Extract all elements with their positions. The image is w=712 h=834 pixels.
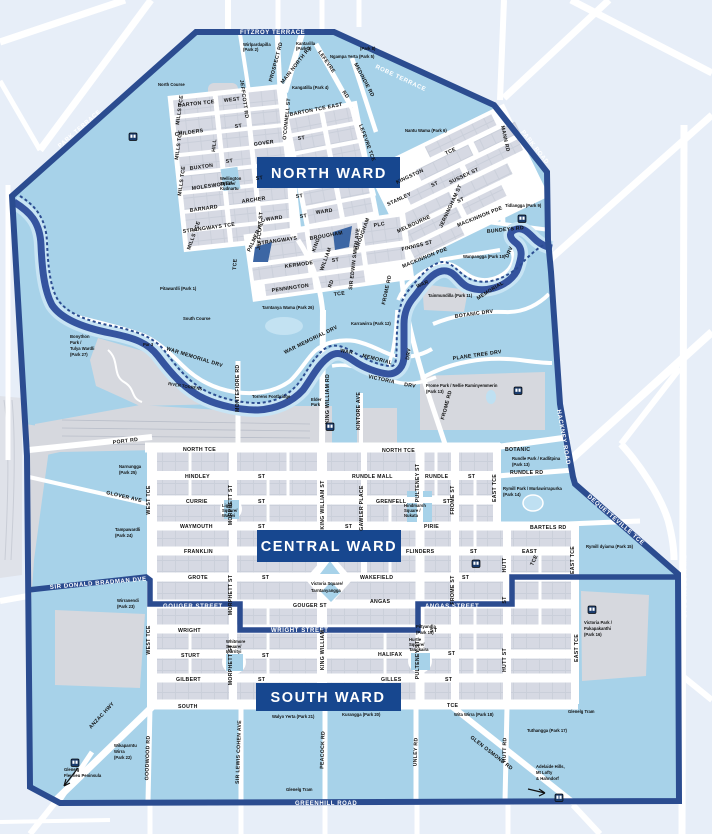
svg-text:Bonython: Bonython xyxy=(70,334,90,339)
svg-text:(Park 2): (Park 2) xyxy=(243,47,259,52)
svg-text:ST: ST xyxy=(258,677,266,683)
svg-text:GILLES: GILLES xyxy=(381,677,402,683)
svg-text:Pitawardli (Park 1): Pitawardli (Park 1) xyxy=(160,286,197,291)
svg-text:(Park 27): (Park 27) xyxy=(70,352,88,357)
svg-text:TCE: TCE xyxy=(232,258,239,270)
svg-text:Ngampa Yerta (Park 5): Ngampa Yerta (Park 5) xyxy=(330,54,375,59)
svg-text:(Park 22): (Park 22) xyxy=(114,755,132,760)
svg-text:Tarntanyangga: Tarntanyangga xyxy=(311,588,341,593)
svg-text:GROTE: GROTE xyxy=(188,575,208,581)
svg-text:Rymill dyiama (Park 15): Rymill dyiama (Park 15) xyxy=(586,544,634,549)
svg-text:ST: ST xyxy=(258,499,266,505)
svg-text:HINDLEY: HINDLEY xyxy=(185,474,210,480)
svg-text:Pakapakanthi: Pakapakanthi xyxy=(584,626,611,631)
svg-text:EAST: EAST xyxy=(522,549,538,555)
svg-text:TCE: TCE xyxy=(447,703,459,709)
svg-text:Tidlangga (Park 9): Tidlangga (Park 9) xyxy=(505,203,542,208)
svg-text:Narnungga: Narnungga xyxy=(119,464,142,469)
svg-text:Park: Park xyxy=(311,402,321,407)
svg-text:Tulya Wardli: Tulya Wardli xyxy=(70,346,94,351)
svg-text:Karrawirra (Park 12): Karrawirra (Park 12) xyxy=(351,321,391,326)
svg-text:Glenelg Tram: Glenelg Tram xyxy=(286,787,313,792)
svg-text:MORPHETT ST: MORPHETT ST xyxy=(228,574,234,615)
svg-text:ST: ST xyxy=(502,596,508,604)
svg-text:ST: ST xyxy=(262,575,270,581)
svg-text:(Park 24): (Park 24) xyxy=(115,533,133,538)
svg-text:Par 3: Par 3 xyxy=(143,342,154,347)
svg-text:SOUTH WARD: SOUTH WARD xyxy=(270,690,385,706)
svg-text:Kurangga (Park 20): Kurangga (Park 20) xyxy=(342,712,381,717)
svg-text:Wirra: Wirra xyxy=(114,749,125,754)
svg-text:ST: ST xyxy=(295,193,304,200)
svg-text:Tuthangga (Park 17): Tuthangga (Park 17) xyxy=(527,728,568,733)
svg-text:ST: ST xyxy=(299,213,308,220)
svg-text:Wauwi: Wauwi xyxy=(222,513,235,518)
svg-text:Nukata: Nukata xyxy=(404,513,419,518)
svg-text:(Park 16): (Park 16) xyxy=(584,632,602,637)
svg-text:ST: ST xyxy=(345,524,353,530)
svg-text:South Course: South Course xyxy=(183,316,211,321)
svg-text:BARTELS RD: BARTELS RD xyxy=(530,525,566,531)
svg-text:WAYMOUTH: WAYMOUTH xyxy=(180,524,213,530)
svg-text:Wanpangga (Park 10): Wanpangga (Park 10) xyxy=(463,254,506,259)
svg-text:ST: ST xyxy=(468,474,476,480)
svg-text:FLINDERS: FLINDERS xyxy=(406,549,435,555)
svg-text:NORTH WARD: NORTH WARD xyxy=(271,166,387,182)
svg-text:GRENFELL: GRENFELL xyxy=(376,499,407,505)
svg-text:ST: ST xyxy=(234,123,243,130)
svg-text:(Park 25): (Park 25) xyxy=(119,470,137,475)
svg-text:Kangatilla (Park 4): Kangatilla (Park 4) xyxy=(292,85,329,90)
svg-text:(Park 13): (Park 13) xyxy=(426,389,444,394)
svg-text:PIRIE: PIRIE xyxy=(424,524,439,530)
svg-text:(Park 8): (Park 8) xyxy=(360,46,376,51)
svg-text:KINTORE AVE: KINTORE AVE xyxy=(356,392,362,430)
svg-text:GAWLER PLACE: GAWLER PLACE xyxy=(359,485,365,531)
svg-text:EAST TCE: EAST TCE xyxy=(574,634,580,662)
svg-text:BOTANIC: BOTANIC xyxy=(505,447,530,453)
svg-text:Torrens Footbridge: Torrens Footbridge xyxy=(252,394,291,399)
svg-text:ANGAS: ANGAS xyxy=(370,599,390,605)
svg-text:Tarntanya Wama (Park 26): Tarntanya Wama (Park 26) xyxy=(262,305,315,310)
svg-text:EAST TCE: EAST TCE xyxy=(492,474,498,502)
svg-text:ST: ST xyxy=(258,524,266,530)
svg-text:Rymill Park / Murlawirrapurka: Rymill Park / Murlawirrapurka xyxy=(503,486,563,491)
svg-text:Tainmundilla (Park 11): Tainmundilla (Park 11) xyxy=(428,293,473,298)
svg-text:Victoria Park /: Victoria Park / xyxy=(584,620,613,625)
svg-text:Victoria Square/: Victoria Square/ xyxy=(311,581,344,586)
svg-text:RUNDLE RD: RUNDLE RD xyxy=(510,470,543,476)
svg-text:Frome Park / Nellie Raminyemme: Frome Park / Nellie Raminyemmerin xyxy=(426,383,498,388)
svg-text:Mt Lofty: Mt Lofty xyxy=(536,770,553,775)
svg-text:WAKEFIELD: WAKEFIELD xyxy=(360,575,393,581)
svg-text:ST: ST xyxy=(262,653,270,659)
svg-text:WEST TCE: WEST TCE xyxy=(146,485,152,514)
svg-text:ST: ST xyxy=(470,549,478,555)
svg-text:HUTT: HUTT xyxy=(502,557,508,573)
svg-text:WEST TCE: WEST TCE xyxy=(146,625,152,654)
svg-text:& Hahndorf: & Hahndorf xyxy=(536,776,559,781)
svg-text:Park /: Park / xyxy=(70,340,82,345)
svg-text:ST: ST xyxy=(448,651,456,657)
svg-text:SOUTH: SOUTH xyxy=(178,704,198,710)
svg-text:(Park 14): (Park 14) xyxy=(503,492,521,497)
svg-text:CURRIE: CURRIE xyxy=(186,499,208,505)
svg-text:NORTH TCE: NORTH TCE xyxy=(183,447,216,453)
svg-text:Adelaide Hills,: Adelaide Hills, xyxy=(536,764,565,769)
svg-text:(Park 13): (Park 13) xyxy=(512,462,530,467)
svg-text:Wikaparntu: Wikaparntu xyxy=(114,743,137,748)
svg-text:WRIGHT: WRIGHT xyxy=(178,628,201,634)
svg-text:GREENHILL ROAD: GREENHILL ROAD xyxy=(295,801,357,807)
svg-text:PULTENEY ST: PULTENEY ST xyxy=(415,463,421,502)
svg-text:North Course: North Course xyxy=(158,82,185,87)
svg-text:FULLARTON ROAD: FULLARTON ROAD xyxy=(680,555,686,619)
svg-text:FITZROY TERRACE: FITZROY TERRACE xyxy=(240,30,305,36)
svg-text:ST: ST xyxy=(255,175,264,182)
svg-text:ST: ST xyxy=(225,158,234,165)
svg-text:Rundle Park / Kadlitpina: Rundle Park / Kadlitpina xyxy=(512,456,561,461)
svg-text:FRANKLIN: FRANKLIN xyxy=(184,549,213,555)
svg-text:(Park 23): (Park 23) xyxy=(117,604,135,609)
svg-text:Iparrityi: Iparrityi xyxy=(226,649,241,654)
svg-text:EAST TCE: EAST TCE xyxy=(570,546,576,574)
svg-text:ST: ST xyxy=(258,474,266,480)
svg-text:GOUGER STREET: GOUGER STREET xyxy=(163,604,223,610)
svg-text:KING WILLIAM: KING WILLIAM xyxy=(320,630,326,670)
svg-text:Nantu Wama (Park 6): Nantu Wama (Park 6) xyxy=(405,128,447,133)
svg-text:ST: ST xyxy=(462,575,470,581)
svg-text:HUTT ST: HUTT ST xyxy=(502,647,508,672)
svg-text:Tampawardli: Tampawardli xyxy=(115,527,140,532)
svg-text:Walyo Yerta (Park 21): Walyo Yerta (Park 21) xyxy=(272,714,315,719)
svg-text:Fleurieu Peninsula: Fleurieu Peninsula xyxy=(64,773,102,778)
svg-text:ST: ST xyxy=(297,135,306,142)
svg-text:KING WILLIAM RD: KING WILLIAM RD xyxy=(325,374,331,424)
svg-text:MONTEFIORE RD: MONTEFIORE RD xyxy=(235,365,241,412)
svg-text:RUNDLE MALL: RUNDLE MALL xyxy=(352,474,393,480)
svg-text:ST: ST xyxy=(445,677,453,683)
svg-text:GILBERT: GILBERT xyxy=(176,677,201,683)
svg-text:STURT: STURT xyxy=(181,653,200,659)
svg-text:FROME ST: FROME ST xyxy=(450,575,456,605)
svg-text:Wita Wirra (Park 18): Wita Wirra (Park 18) xyxy=(454,712,494,717)
svg-text:UNLEY RD: UNLEY RD xyxy=(412,737,419,766)
svg-text:ST: ST xyxy=(331,257,340,264)
svg-text:CENTRAL WARD: CENTRAL WARD xyxy=(261,539,398,555)
svg-text:RUNDLE: RUNDLE xyxy=(425,474,449,480)
svg-text:ST: ST xyxy=(430,628,438,634)
svg-text:KING WILLIAM ST: KING WILLIAM ST xyxy=(320,480,326,530)
svg-text:Tangkaira: Tangkaira xyxy=(409,647,429,652)
svg-text:Glenelg Tram: Glenelg Tram xyxy=(568,709,595,714)
svg-text:HALIFAX: HALIFAX xyxy=(378,652,403,658)
svg-text:Wirranendi: Wirranendi xyxy=(117,598,139,603)
svg-text:NORTH TCE: NORTH TCE xyxy=(382,448,415,454)
svg-text:GOUGER ST: GOUGER ST xyxy=(293,603,327,609)
